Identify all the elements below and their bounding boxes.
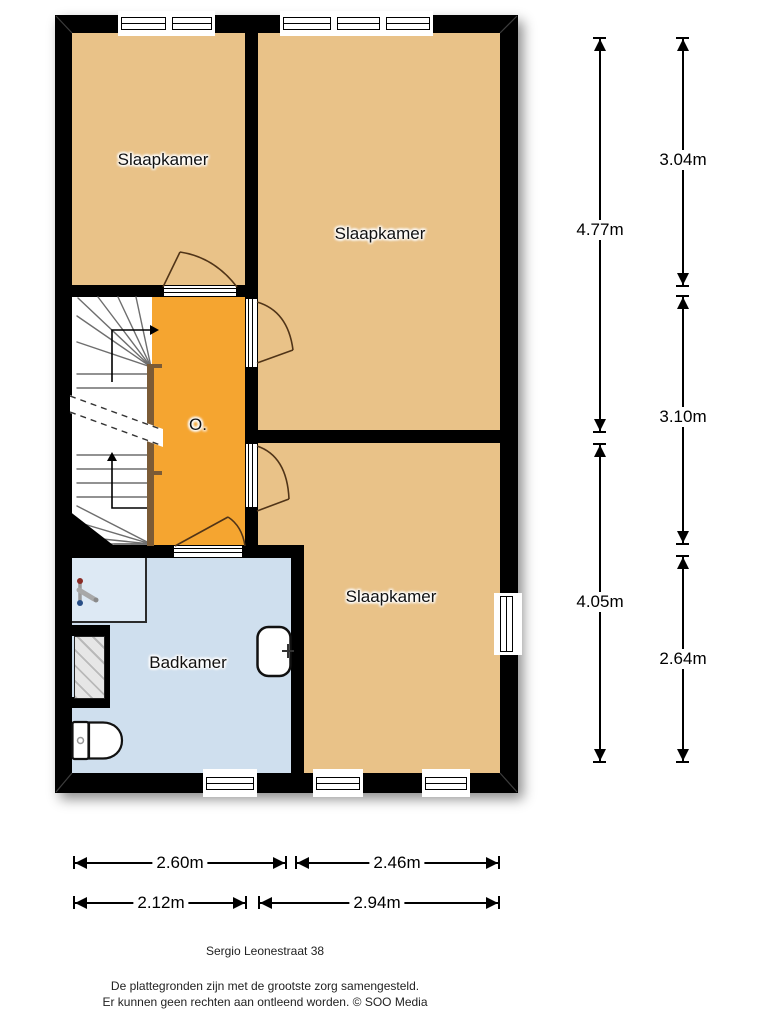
duct-shaft-hatch [74, 636, 105, 699]
dim-label-2-12: 2.12m [133, 893, 188, 913]
shower-area [72, 558, 147, 623]
address-text: Sergio Leonestraat 38 [0, 944, 530, 958]
wall-bathroom-top-left [55, 545, 173, 558]
bedroom-top-right-label: Slaapkamer [335, 224, 426, 244]
dim-label-2-46: 2.46m [369, 853, 424, 873]
bedroom-bottom-label: Slaapkamer [346, 587, 437, 607]
window-bedroom3-south2 [425, 777, 467, 790]
wall-outer-left [55, 15, 72, 793]
window-bedroom2 [283, 17, 430, 30]
floorplan-page: Slaapkamer Slaapkamer O. Badkamer Slaapk… [0, 0, 768, 1024]
dim-label-2-60: 2.60m [152, 853, 207, 873]
window-bedroom1 [121, 17, 212, 30]
door-bedroom2-threshold [245, 298, 258, 368]
stairwell-area [72, 297, 152, 545]
dim-label-4-77: 4.77m [572, 220, 627, 240]
bedroom-top-left-label: Slaapkamer [118, 150, 209, 170]
bathroom-label: Badkamer [149, 653, 226, 673]
door-bedroom3-threshold [245, 443, 258, 508]
wall-bathroom-east [291, 558, 304, 773]
disclaimer-line2: Er kunnen geen rechten aan ontleend word… [0, 995, 530, 1009]
window-pane-divider [165, 17, 173, 30]
door-bathroom-threshold [173, 545, 243, 558]
wall-between-top-bedrooms [245, 33, 258, 285]
dim-label-2-64: 2.64m [655, 649, 710, 669]
dim-label-4-05: 4.05m [572, 592, 627, 612]
wall-between-right-bedrooms [258, 430, 500, 443]
wall-bathroom-top-right [243, 545, 304, 558]
wall-outer-right [500, 15, 518, 793]
wall-landing-east-upper [245, 285, 258, 298]
window-bathroom [206, 777, 254, 790]
door-bedroom1-threshold [163, 285, 237, 297]
dim-label-2-94: 2.94m [349, 893, 404, 913]
window-bedroom3-south1 [316, 777, 360, 790]
window-bedroom3-east [500, 596, 513, 652]
window-pane-divider [379, 17, 387, 30]
landing-label: O. [189, 415, 207, 435]
wall-bedroom1-landing-left [72, 285, 163, 297]
dim-label-3-10: 3.10m [655, 407, 710, 427]
window-pane-divider [330, 17, 338, 30]
wall-landing-east-mid [245, 368, 258, 443]
dim-label-3-04: 3.04m [655, 150, 710, 170]
wall-bedroom1-landing-right [237, 285, 245, 297]
disclaimer-line1: De plattegronden zijn met de grootste zo… [0, 979, 530, 993]
